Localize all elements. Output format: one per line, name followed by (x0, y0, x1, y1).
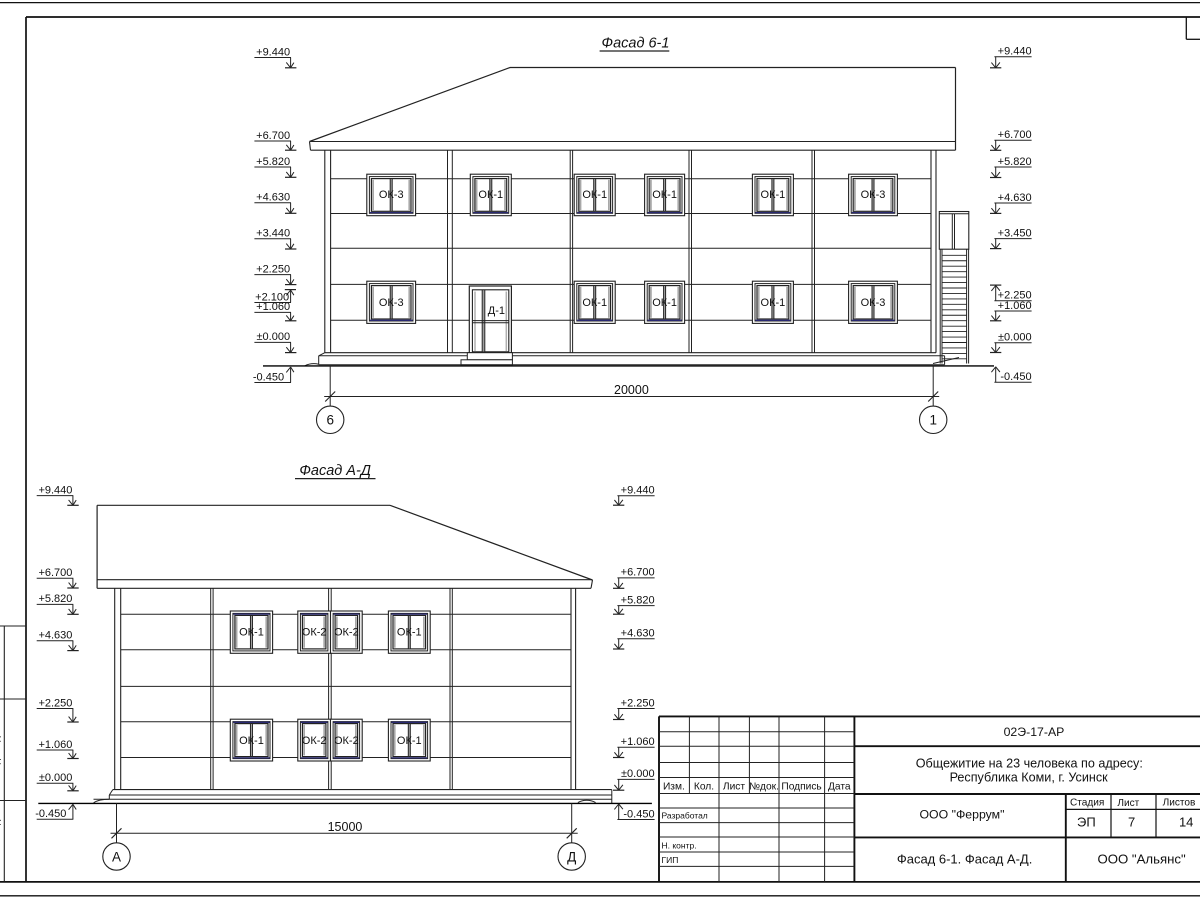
svg-text:+5.820: +5.820 (256, 156, 290, 168)
svg-text:Изм.: Изм. (663, 782, 685, 793)
svg-text:ОК-2: ОК-2 (302, 626, 327, 638)
svg-text:Взам. инв. №: Взам. инв. № (0, 634, 1, 690)
svg-text:+2.250: +2.250 (621, 697, 655, 709)
svg-text:-0.450: -0.450 (623, 808, 654, 820)
svg-text:ОК-3: ОК-3 (379, 297, 404, 309)
svg-text:+1.060: +1.060 (38, 739, 72, 751)
svg-text:ОК-1: ОК-1 (478, 189, 503, 201)
svg-text:ОК-3: ОК-3 (379, 189, 404, 201)
svg-text:ОК-1: ОК-1 (652, 297, 677, 309)
svg-text:ЭП: ЭП (1077, 815, 1096, 830)
svg-text:+6.700: +6.700 (38, 567, 72, 579)
svg-text:ООО "Альянс": ООО "Альянс" (1098, 851, 1186, 866)
svg-text:ООО "Феррум": ООО "Феррум" (919, 807, 1004, 821)
svg-text:ОК-1: ОК-1 (582, 297, 607, 309)
svg-text:Н. контр.: Н. контр. (662, 840, 697, 850)
svg-text:ОК-3: ОК-3 (861, 189, 886, 201)
svg-text:Листов: Листов (1163, 797, 1196, 808)
svg-text:+9.440: +9.440 (38, 484, 72, 496)
svg-text:+1.060: +1.060 (998, 300, 1032, 312)
svg-text:ОК-1: ОК-1 (397, 735, 422, 747)
svg-text:-0.450: -0.450 (1000, 371, 1031, 383)
svg-text:+6.700: +6.700 (621, 567, 655, 579)
svg-text:+3.440: +3.440 (256, 228, 290, 240)
svg-text:Лист: Лист (1117, 798, 1139, 809)
svg-text:7: 7 (1128, 815, 1135, 830)
svg-text:±0.000: ±0.000 (257, 331, 291, 343)
svg-text:ОК-2: ОК-2 (302, 735, 327, 747)
svg-text:-0.450: -0.450 (35, 808, 66, 820)
svg-text:+5.820: +5.820 (38, 593, 72, 605)
svg-text:14: 14 (1179, 815, 1193, 830)
svg-text:±0.000: ±0.000 (998, 332, 1032, 344)
svg-text:±0.000: ±0.000 (39, 772, 73, 784)
svg-text:+4.630: +4.630 (998, 192, 1032, 204)
svg-text:ОК-1: ОК-1 (239, 626, 264, 638)
svg-text:+5.820: +5.820 (998, 156, 1032, 168)
svg-text:ОК-1: ОК-1 (761, 297, 786, 309)
svg-text:20000: 20000 (614, 383, 649, 397)
svg-text:Лист: Лист (723, 782, 745, 793)
svg-text:6: 6 (326, 413, 334, 428)
svg-text:Подп. и дата: Подп. и дата (0, 722, 1, 775)
svg-text:Фасад А-Д: Фасад А-Д (299, 463, 371, 479)
svg-text:ОК-1: ОК-1 (582, 189, 607, 201)
svg-text:Стадия: Стадия (1070, 797, 1104, 808)
svg-text:02Э-17-АР: 02Э-17-АР (1004, 725, 1065, 739)
svg-text:±0.000: ±0.000 (621, 768, 655, 780)
svg-text:1: 1 (929, 413, 937, 428)
svg-text:А: А (112, 849, 121, 864)
svg-text:Инв. № подл.: Инв. № подл. (0, 812, 1, 868)
svg-text:Фасад 6-1: Фасад 6-1 (602, 36, 670, 52)
svg-text:Д-1: Д-1 (488, 305, 505, 317)
svg-text:+9.440: +9.440 (256, 46, 290, 58)
svg-text:+9.440: +9.440 (998, 46, 1032, 58)
svg-text:ОК-1: ОК-1 (397, 626, 422, 638)
svg-text:Фасад 6-1. Фасад А-Д.: Фасад 6-1. Фасад А-Д. (897, 851, 1033, 866)
svg-text:-0.450: -0.450 (253, 371, 284, 383)
svg-text:+2.250: +2.250 (256, 263, 290, 275)
svg-text:Разработал: Разработал (662, 811, 708, 821)
svg-text:+4.630: +4.630 (621, 628, 655, 640)
svg-text:ОК-2: ОК-2 (334, 735, 359, 747)
svg-text:+4.630: +4.630 (256, 192, 290, 204)
svg-text:Дата: Дата (828, 782, 851, 793)
svg-text:ГИП: ГИП (662, 855, 679, 865)
svg-text:ОК-1: ОК-1 (761, 189, 786, 201)
svg-text:ОК-2: ОК-2 (334, 626, 359, 638)
svg-text:ОК-1: ОК-1 (652, 189, 677, 201)
svg-text:ОК-1: ОК-1 (239, 735, 264, 747)
svg-text:+4.630: +4.630 (38, 630, 72, 642)
svg-text:+2.250: +2.250 (38, 697, 72, 709)
svg-text:ОК-3: ОК-3 (861, 297, 886, 309)
svg-text:+6.700: +6.700 (256, 130, 290, 142)
svg-text:15000: 15000 (328, 820, 363, 834)
svg-text:№док.: №док. (749, 782, 779, 793)
svg-text:+9.440: +9.440 (621, 485, 655, 497)
svg-text:+1.060: +1.060 (621, 736, 655, 748)
svg-text:+3.450: +3.450 (998, 227, 1032, 239)
svg-text:Подпись: Подпись (781, 782, 821, 793)
svg-text:+1.060: +1.060 (256, 301, 290, 313)
svg-text:+6.700: +6.700 (998, 129, 1032, 141)
svg-text:Кол.: Кол. (694, 782, 714, 793)
svg-text:Республика Коми, г. Усинск: Республика Коми, г. Усинск (950, 771, 1109, 785)
svg-text:Общежитие на 23 человека по ад: Общежитие на 23 человека по адресу: (916, 757, 1143, 771)
svg-text:Д: Д (567, 849, 576, 864)
svg-text:+5.820: +5.820 (621, 594, 655, 606)
